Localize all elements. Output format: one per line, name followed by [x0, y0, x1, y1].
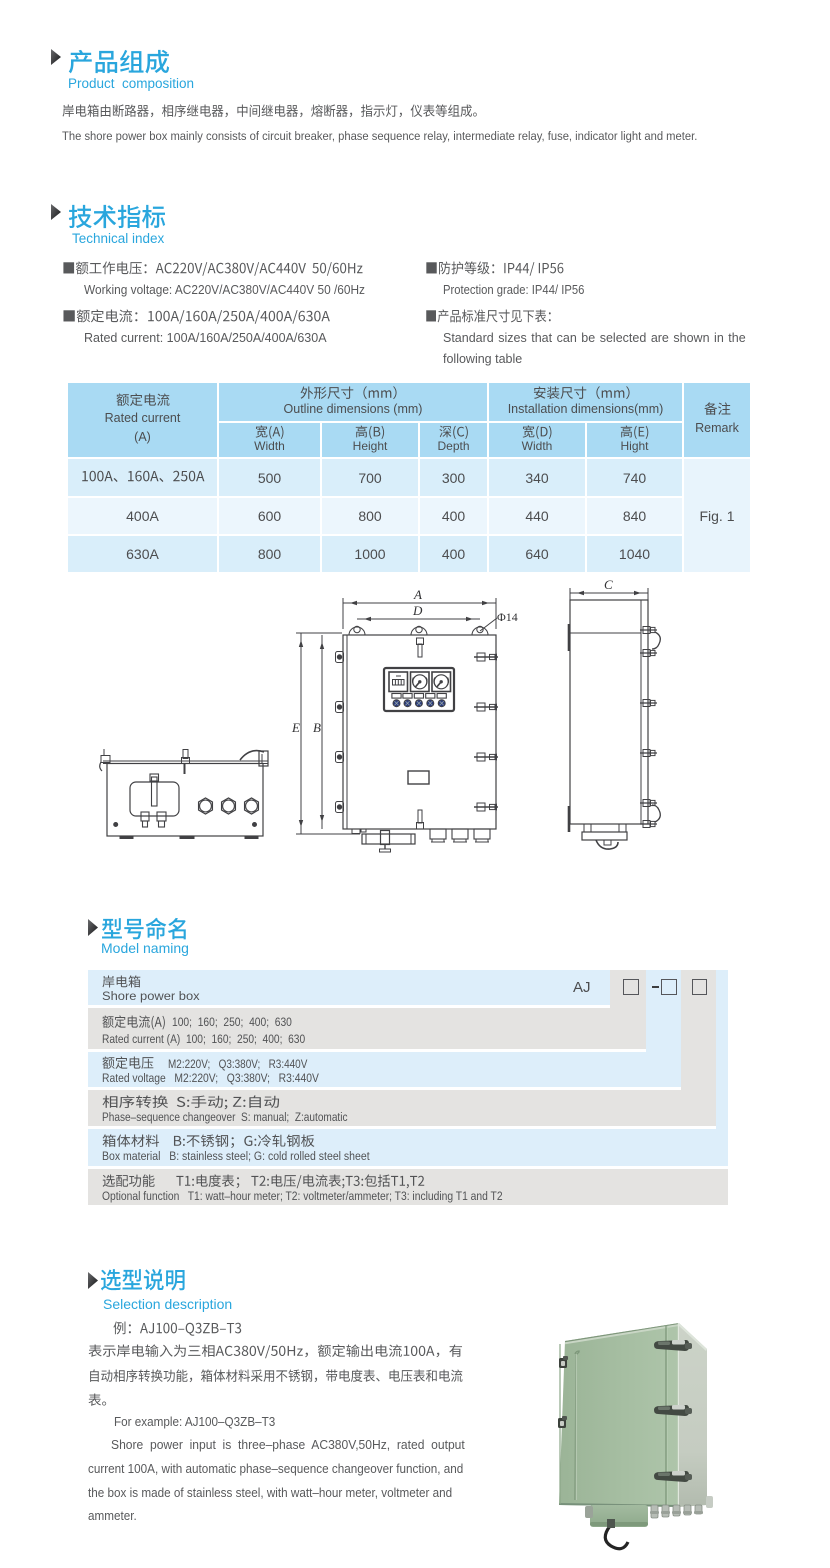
- svg-text:C: C: [604, 577, 613, 592]
- svg-text:B: B: [313, 720, 321, 735]
- svg-text:E: E: [291, 720, 300, 735]
- svg-text:Φ14: Φ14: [497, 610, 518, 624]
- svg-text:A: A: [413, 587, 422, 602]
- svg-text:D: D: [412, 603, 423, 618]
